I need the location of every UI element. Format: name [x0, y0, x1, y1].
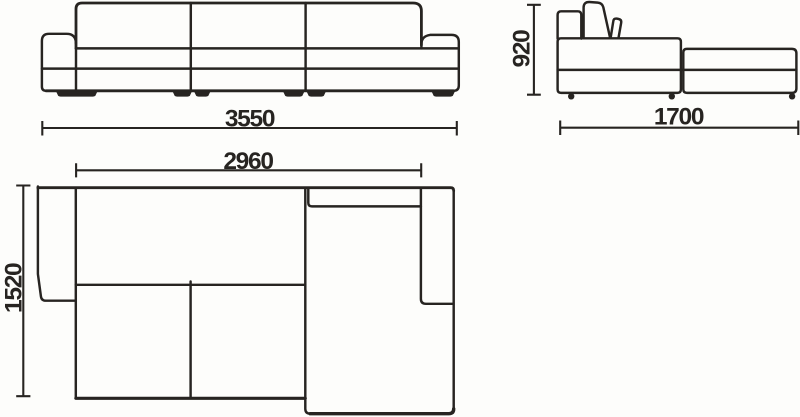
svg-text:920: 920: [509, 30, 536, 68]
svg-text:3550: 3550: [225, 106, 275, 133]
svg-text:1700: 1700: [654, 103, 704, 130]
svg-text:2960: 2960: [223, 148, 273, 175]
svg-text:1520: 1520: [1, 263, 28, 313]
